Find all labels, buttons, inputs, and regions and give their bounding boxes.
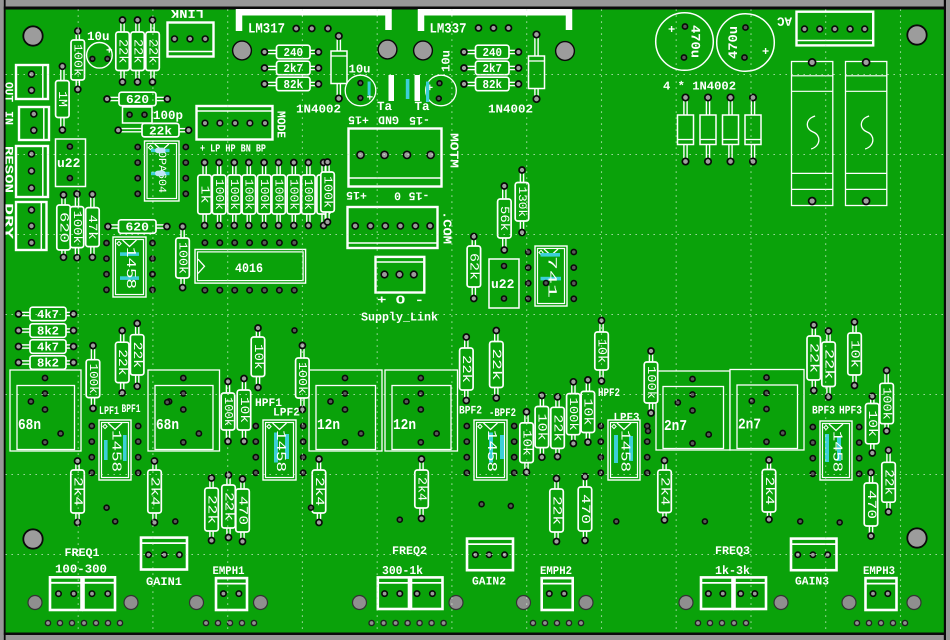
- svg-text:2k4: 2k4: [414, 477, 428, 501]
- svg-text:4 * 1N4002: 4 * 1N4002: [663, 80, 736, 94]
- svg-text:FREQ3: FREQ3: [715, 545, 750, 558]
- svg-text:82k: 82k: [482, 78, 502, 92]
- svg-text:GAIN2: GAIN2: [472, 576, 506, 589]
- svg-text:22k: 22k: [145, 39, 159, 64]
- svg-text:1N4002: 1N4002: [488, 103, 533, 117]
- svg-text:100k: 100k: [320, 176, 334, 208]
- svg-text:470: 470: [235, 496, 249, 525]
- svg-text:10u: 10u: [349, 63, 371, 77]
- svg-text:-15: -15: [409, 189, 430, 202]
- svg-text:10k: 10k: [865, 410, 879, 436]
- svg-text:22k: 22k: [807, 343, 821, 373]
- svg-text:FREQ1: FREQ1: [65, 547, 100, 560]
- svg-text:22k: 22k: [115, 39, 129, 64]
- svg-text:82k: 82k: [283, 78, 303, 92]
- svg-text:10k: 10k: [237, 397, 251, 423]
- svg-text:100k: 100k: [71, 44, 85, 76]
- svg-text:BPF3: BPF3: [812, 405, 835, 418]
- svg-text:620: 620: [125, 221, 149, 235]
- svg-text:GAIN3: GAIN3: [795, 576, 829, 589]
- svg-text:470: 470: [578, 494, 592, 524]
- svg-text:100k: 100k: [227, 179, 241, 210]
- svg-text:470: 470: [864, 490, 878, 519]
- svg-text:741: 741: [545, 256, 559, 298]
- svg-text:62k: 62k: [467, 253, 481, 280]
- svg-text:100k: 100k: [212, 179, 226, 210]
- svg-text:2n7: 2n7: [738, 417, 761, 434]
- svg-text:2k4: 2k4: [312, 477, 326, 506]
- svg-text:10k: 10k: [847, 340, 861, 368]
- svg-text:u22: u22: [57, 156, 81, 171]
- svg-text:GAIN1: GAIN1: [146, 576, 182, 589]
- svg-text:HPF3: HPF3: [839, 405, 862, 418]
- svg-text:47k: 47k: [85, 215, 99, 240]
- svg-text:2k4: 2k4: [657, 477, 671, 506]
- svg-text:12n: 12n: [393, 417, 416, 434]
- svg-text:8k2: 8k2: [37, 357, 59, 371]
- svg-text:+: +: [668, 23, 675, 37]
- svg-text:100k: 100k: [644, 366, 658, 399]
- svg-text:Ta: Ta: [377, 100, 393, 114]
- svg-text:4016: 4016: [235, 261, 263, 276]
- svg-text:300-1k: 300-1k: [382, 564, 423, 578]
- svg-text:MODE: MODE: [273, 111, 287, 138]
- svg-text:100k: 100k: [257, 179, 271, 210]
- svg-text:620: 620: [126, 93, 149, 107]
- svg-text:1458: 1458: [108, 430, 123, 472]
- svg-text:22k: 22k: [204, 495, 218, 524]
- svg-text:8k2: 8k2: [37, 325, 59, 339]
- svg-text:+15: +15: [348, 113, 369, 126]
- svg-text:2n7: 2n7: [664, 418, 687, 435]
- svg-text:22k: 22k: [881, 469, 895, 495]
- svg-text:22k: 22k: [130, 342, 144, 368]
- svg-text:10u: 10u: [440, 50, 454, 72]
- svg-text:LM337: LM337: [430, 22, 467, 38]
- svg-text:130k: 130k: [515, 187, 528, 218]
- svg-text:100k: 100k: [295, 362, 309, 394]
- svg-text:1458: 1458: [483, 430, 498, 472]
- svg-text:10u: 10u: [87, 30, 110, 44]
- svg-text:4k7: 4k7: [37, 341, 59, 355]
- svg-text:100k: 100k: [86, 364, 100, 394]
- svg-text:620: 620: [56, 212, 70, 243]
- svg-text:MOTM: MOTM: [447, 133, 461, 168]
- svg-text:-15: -15: [409, 113, 430, 126]
- svg-text:22k: 22k: [221, 492, 235, 521]
- svg-text:IN: IN: [2, 111, 15, 125]
- svg-text:LPF2: LPF2: [273, 407, 300, 420]
- svg-text:1458: 1458: [617, 430, 632, 472]
- svg-text:240: 240: [482, 46, 502, 60]
- svg-text:1k: 1k: [197, 186, 211, 204]
- svg-text:EMPH1: EMPH1: [213, 565, 245, 578]
- svg-text:FREQ2: FREQ2: [392, 545, 427, 558]
- svg-text:4k7: 4k7: [37, 308, 59, 322]
- svg-text:1458: 1458: [829, 431, 844, 472]
- svg-text:100k: 100k: [175, 242, 189, 274]
- svg-text:68n: 68n: [18, 417, 41, 434]
- svg-text:+: +: [762, 45, 769, 59]
- svg-text:22k: 22k: [130, 39, 144, 64]
- svg-text:240: 240: [283, 46, 303, 60]
- svg-text:10k: 10k: [251, 344, 265, 370]
- svg-text:EMPH2: EMPH2: [540, 565, 572, 578]
- svg-text:470u: 470u: [688, 25, 703, 58]
- svg-text:22k: 22k: [115, 349, 129, 375]
- svg-text:22k: 22k: [459, 355, 473, 383]
- svg-text:+ O -: + O -: [377, 294, 424, 308]
- svg-text:GND: GND: [378, 113, 399, 126]
- svg-text:BPF1: BPF1: [122, 403, 141, 416]
- svg-text:1M: 1M: [55, 91, 69, 107]
- svg-text:100k: 100k: [287, 179, 301, 210]
- svg-text:LPF1: LPF1: [99, 405, 119, 418]
- svg-text:1k-3k: 1k-3k: [715, 564, 750, 578]
- svg-text:u22: u22: [491, 277, 515, 292]
- svg-text:2k4: 2k4: [147, 477, 161, 506]
- svg-text:-BPF2: -BPF2: [489, 407, 516, 420]
- svg-text:22k: 22k: [549, 496, 563, 525]
- svg-text:100k: 100k: [70, 211, 84, 244]
- svg-text:DRY: DRY: [2, 203, 15, 239]
- svg-text:OUT: OUT: [2, 82, 15, 102]
- svg-text:Supply_Link: Supply_Link: [361, 311, 438, 325]
- svg-text:470u: 470u: [726, 26, 741, 59]
- svg-text:AC: AC: [777, 14, 793, 28]
- svg-text:100k: 100k: [879, 387, 893, 419]
- svg-text:1458: 1458: [272, 430, 287, 472]
- svg-text:RESON: RESON: [2, 146, 15, 193]
- svg-text:100p: 100p: [153, 109, 183, 123]
- svg-text:0: 0: [394, 189, 401, 202]
- svg-text:68n: 68n: [156, 417, 179, 434]
- svg-text:100k: 100k: [242, 179, 256, 210]
- svg-text:10k: 10k: [594, 339, 608, 363]
- svg-text:1458: 1458: [122, 247, 137, 289]
- svg-text:LINK: LINK: [170, 6, 204, 20]
- svg-text:22k: 22k: [550, 414, 564, 441]
- svg-text:+15: +15: [346, 188, 367, 201]
- svg-text:Ta: Ta: [415, 100, 431, 114]
- svg-text:12n: 12n: [317, 417, 340, 434]
- svg-text:100k: 100k: [301, 179, 315, 210]
- svg-text:EMPH3: EMPH3: [863, 565, 895, 578]
- svg-text:56k: 56k: [497, 206, 511, 231]
- svg-text:100k: 100k: [271, 179, 285, 210]
- svg-text:+ LP HP BN BP: + LP HP BN BP: [200, 144, 266, 156]
- svg-text:2k4: 2k4: [70, 477, 84, 506]
- svg-text:100k: 100k: [566, 398, 580, 431]
- svg-text:10k: 10k: [581, 398, 595, 425]
- svg-text:BPF2: BPF2: [459, 405, 482, 418]
- svg-text:+: +: [106, 46, 113, 58]
- svg-text:22k: 22k: [821, 349, 835, 380]
- svg-text:LM317: LM317: [248, 22, 285, 38]
- svg-text:10k: 10k: [519, 430, 533, 456]
- svg-text:100-300: 100-300: [55, 563, 107, 577]
- svg-text:22k: 22k: [489, 349, 503, 381]
- svg-text:1N4002: 1N4002: [296, 103, 341, 117]
- svg-text:10k: 10k: [535, 414, 549, 441]
- svg-text:.COM: .COM: [440, 211, 454, 244]
- svg-text:2k4: 2k4: [762, 477, 776, 506]
